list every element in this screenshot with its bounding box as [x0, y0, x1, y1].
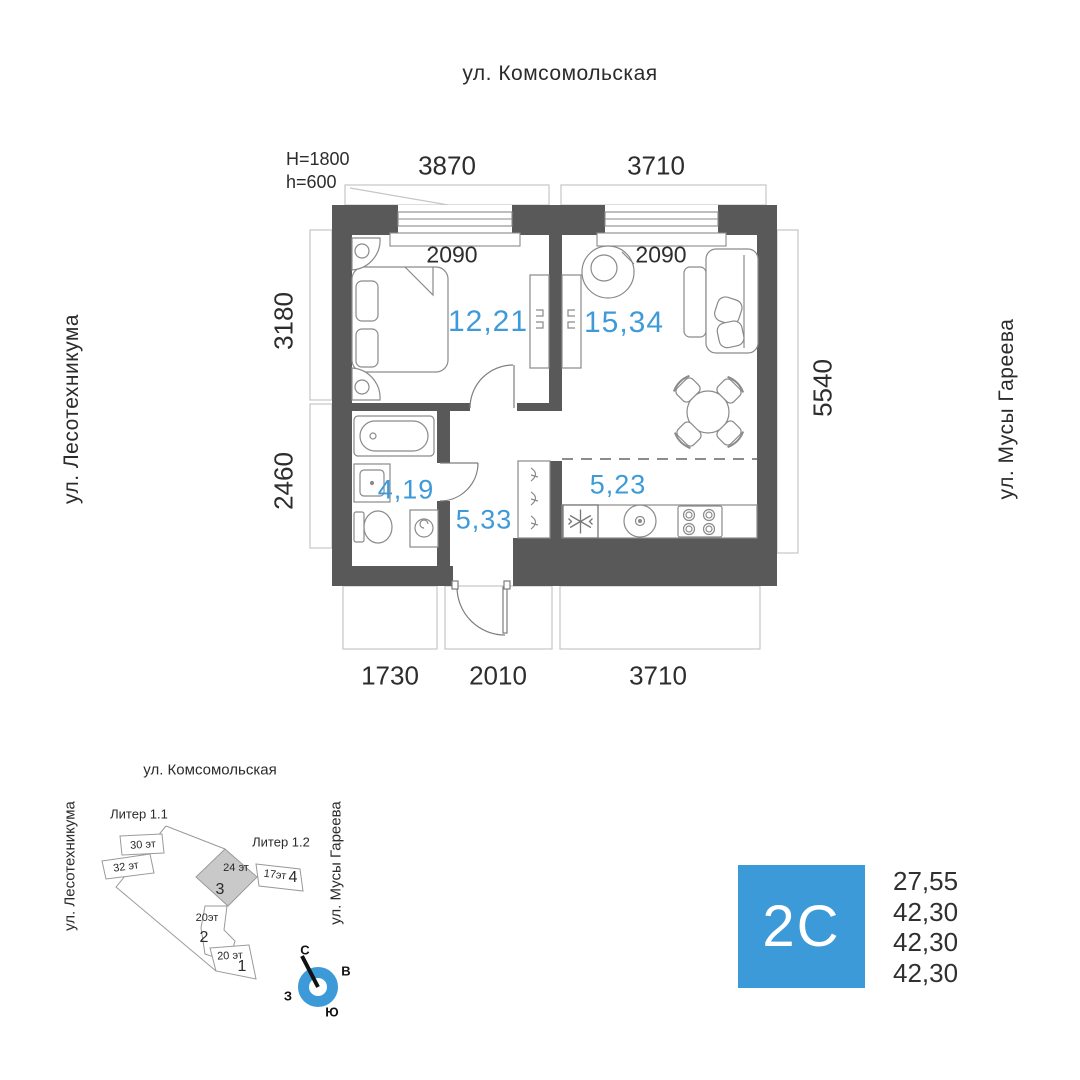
compass-icon: [302, 956, 333, 1002]
floorplan-page: ул. Комсомольская ул. Лесотехникума ул. …: [0, 0, 1080, 1080]
dim-window-bedroom: 2090: [426, 242, 477, 269]
dim-window-living: 2090: [635, 242, 686, 269]
minimap-building-4-number: 4: [289, 869, 298, 887]
minimap-liter-1-2: Литер 1.2: [252, 835, 310, 850]
building-3-highlighted: [196, 849, 257, 906]
bathtub-icon: [354, 416, 434, 456]
dim-bottom-2010: 2010: [469, 661, 527, 692]
compass-south-label: Ю: [325, 1005, 338, 1020]
dim-top-3710: 3710: [627, 151, 685, 182]
sofa-icon: [684, 249, 758, 353]
nightstand-top-icon: [352, 238, 380, 270]
armchair-icon: [582, 246, 634, 298]
street-left-label: ул. Лесотехникума: [60, 314, 84, 504]
area-value-3: 42,30: [893, 927, 958, 958]
washing-machine-icon: [410, 510, 438, 547]
dim-left-3180: 3180: [269, 292, 300, 350]
dim-top-3870: 3870: [418, 151, 476, 182]
minimap-buildings: [102, 834, 303, 979]
minimap-floors-17: 17эт: [263, 868, 287, 883]
minimap-floors-30: 30 эт: [130, 838, 156, 852]
minimap-building-3-number: 3: [216, 881, 225, 899]
coat-cabinet-icon: [518, 461, 550, 538]
street-right-label: ул. Мусы Гареева: [995, 319, 1019, 500]
wall-bottom-right: [513, 538, 777, 586]
entrance-door-leaf: [503, 587, 507, 633]
apartment-type-label: 2С: [762, 893, 840, 960]
dim-bottom-1730: 1730: [361, 661, 419, 692]
minimap-building-1-number: 1: [238, 958, 247, 976]
wall-bedroom-bottom: [352, 403, 470, 411]
entrance-door-arc: [457, 587, 505, 635]
kitchen-sink-icon: [624, 505, 656, 537]
dining-table-icon: [672, 374, 745, 450]
nightstand-bottom-icon: [352, 368, 380, 400]
stove-icon: [678, 506, 722, 537]
window-bedroom: [390, 205, 520, 246]
dim-left-2460: 2460: [269, 452, 300, 510]
minimap-liter-1-1: Литер 1.1: [110, 807, 168, 822]
bed-icon: [352, 267, 448, 372]
kitchen-area-label: 5,23: [590, 470, 647, 501]
window-height-note: H=1800 h=600: [286, 148, 350, 194]
apartment-areas-list: 27,55 42,30 42,30 42,30: [893, 866, 958, 988]
wall-bathroom-lower: [437, 501, 450, 566]
minimap-floors-24: 24 эт: [223, 862, 249, 874]
bedroom-door-arc: [470, 365, 513, 408]
wall-room-divider: [549, 235, 562, 403]
wall-right: [757, 205, 777, 586]
wall-left: [332, 205, 352, 586]
compass-west-label: З: [284, 989, 292, 1004]
wall-hall-kitchen: [550, 461, 562, 538]
wall-bathroom-upper: [437, 411, 450, 463]
wall-stub: [517, 403, 562, 411]
window-note-line1: H=1800: [286, 148, 350, 171]
hallway-area-label: 5,33: [456, 505, 513, 536]
minimap-street-top: ул. Комсомольская: [143, 762, 276, 779]
entrance-jamb-left: [452, 581, 458, 589]
compass-east-label: В: [341, 964, 350, 979]
minimap-building-2-number: 2: [200, 929, 209, 947]
wall-bottom-left: [332, 566, 453, 586]
bathroom-area-label: 4,19: [378, 475, 435, 506]
area-value-1: 27,55: [893, 866, 958, 897]
bedroom-area-label: 12,21: [448, 305, 528, 339]
minimap-street-right: ул. Мусы Гареева: [328, 801, 345, 925]
compass-north-label: С: [300, 943, 309, 958]
minimap-street-left: ул. Лесотехникума: [62, 801, 79, 931]
entrance-jamb-right: [504, 581, 510, 589]
minimap-floors-20a: 20эт: [196, 912, 219, 924]
window-note-leader: [350, 188, 460, 207]
toilet-icon: [354, 511, 392, 543]
street-top-label: ул. Комсомольская: [462, 62, 657, 86]
apartment-type-badge: 2С: [738, 865, 865, 988]
dim-right-5540: 5540: [808, 359, 839, 417]
bathroom-door-arc: [440, 463, 478, 501]
fridge-icon: [563, 505, 598, 538]
area-value-4: 42,30: [893, 958, 958, 989]
area-value-2: 42,30: [893, 897, 958, 928]
window-note-line2: h=600: [286, 171, 350, 194]
window-living: [597, 205, 726, 246]
living-area-label: 15,34: [584, 306, 664, 340]
dim-bottom-3710: 3710: [629, 661, 687, 692]
